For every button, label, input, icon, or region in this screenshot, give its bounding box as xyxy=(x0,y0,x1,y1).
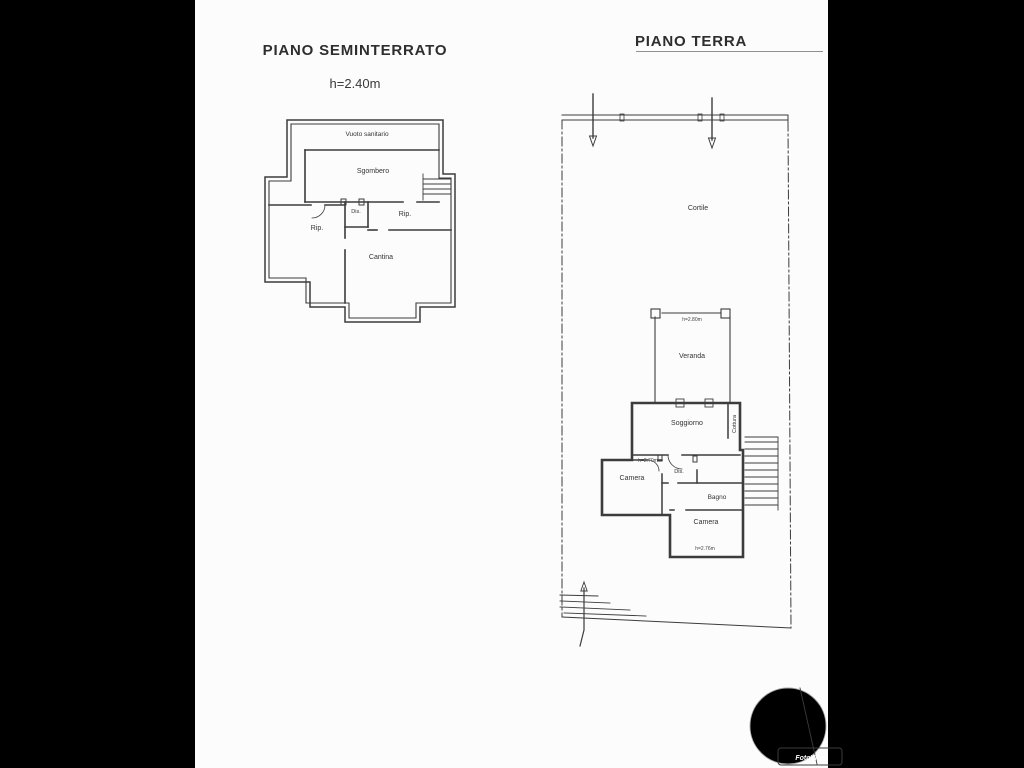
room-label-soggiorno: Soggiorno xyxy=(671,420,703,427)
camera-left-height-note: h=2.70m xyxy=(638,458,658,464)
room-label-rip-right: Rip. xyxy=(399,211,412,218)
groundfloor-title: PIANO TERRA xyxy=(635,33,747,50)
room-label-cottura: Cottura xyxy=(732,414,738,433)
room-label-dis-basement: Dis. xyxy=(351,209,361,215)
room-label-dis-ground: Dis. xyxy=(674,469,684,475)
room-label-cantina: Cantina xyxy=(369,254,393,261)
veranda-height-note: h=2.80m xyxy=(682,317,702,323)
property-boundary xyxy=(562,114,791,628)
room-label-cortile: Cortile xyxy=(688,205,708,212)
camera-bottom-height-note: h=2.76m xyxy=(695,546,715,552)
room-label-sgombero: Sgombero xyxy=(357,168,389,175)
basement-floorplan: Vuoto sanitario Sgombero Rip. Dis. Rip. … xyxy=(255,112,465,330)
basement-title: PIANO SEMINTERRATO xyxy=(250,42,460,59)
room-label-veranda: Veranda xyxy=(679,353,705,360)
room-label-bagno: Bagno xyxy=(708,494,727,501)
floorplan-sheet: PIANO SEMINTERRATO h=2.40m PIANO TERRA xyxy=(195,0,828,768)
room-label-rip-left: Rip. xyxy=(311,225,324,232)
room-label-camera-bottom: Camera xyxy=(694,519,719,526)
exterior-stairs-right xyxy=(745,437,778,510)
groundfloor-title-underline xyxy=(636,51,823,52)
watermark-circle-sketch xyxy=(750,688,826,764)
room-label-camera-left: Camera xyxy=(620,475,645,482)
watermark-text: ANNUNCI xyxy=(575,688,873,755)
groundfloor-floorplan: Cortile h=2.80m Veranda Soggiorno Cottur… xyxy=(550,90,800,650)
watermark: ANNUNCI FotoVille xyxy=(573,672,873,768)
room-label-vuoto-sanitario: Vuoto sanitario xyxy=(345,131,389,138)
entrance-arrows xyxy=(590,94,716,148)
watermark-badge-text: FotoVille xyxy=(795,755,824,762)
exterior-steps-bottom-left xyxy=(560,582,646,646)
basement-height-note: h=2.40m xyxy=(250,76,460,91)
